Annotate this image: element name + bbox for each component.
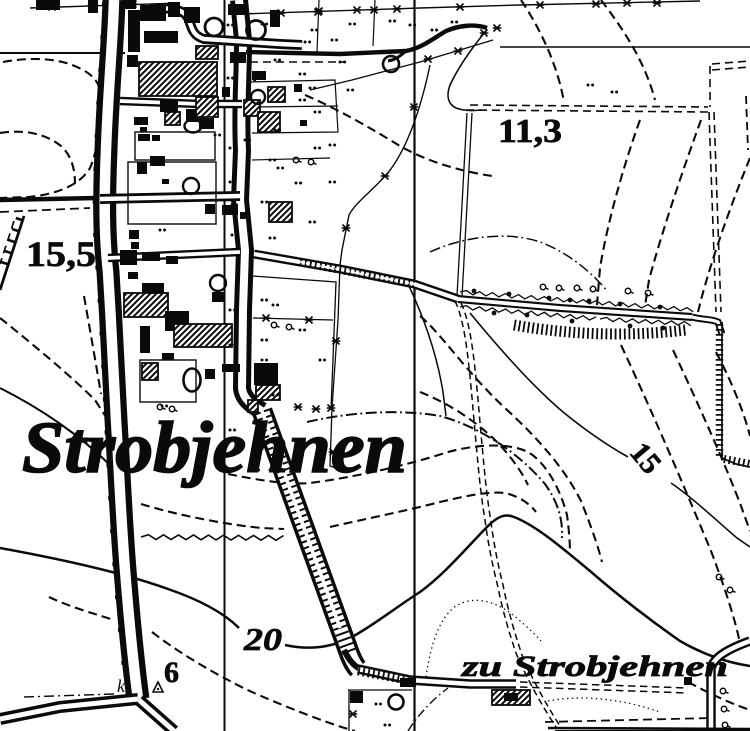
svg-text:6: 6 [164,656,179,689]
svg-text:15,5: 15,5 [26,234,96,274]
svg-text:zu Strobjehnen: zu Strobjehnen [461,650,728,683]
svg-text:k.: k. [117,676,130,696]
svg-text:11,3: 11,3 [498,113,562,150]
svg-text:Strobjehnen: Strobjehnen [22,407,407,488]
svg-text:20: 20 [243,621,282,657]
